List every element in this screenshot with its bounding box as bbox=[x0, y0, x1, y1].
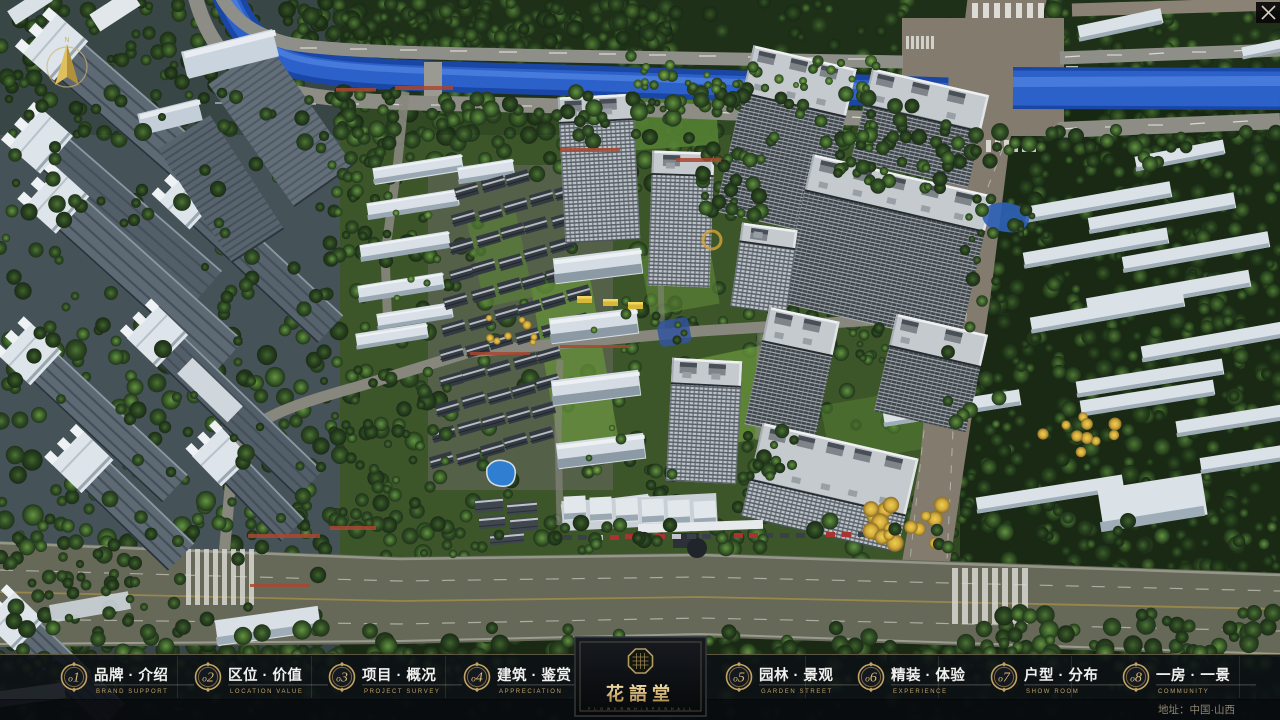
svg-text:EXPERIENCE: EXPERIENCE bbox=[893, 689, 948, 695]
svg-text:一房 · 一景: 一房 · 一景 bbox=[1156, 666, 1230, 684]
svg-text:BRAND SUPPORT: BRAND SUPPORT bbox=[96, 689, 168, 695]
svg-text:建筑 · 鉴赏: 建筑 · 鉴赏 bbox=[497, 666, 571, 684]
svg-text:COMMUNITY: COMMUNITY bbox=[1158, 689, 1209, 695]
svg-text:N: N bbox=[64, 37, 69, 44]
svg-text:项目 · 概况: 项目 · 概况 bbox=[362, 666, 436, 684]
svg-text:PROJECT SURVEY: PROJECT SURVEY bbox=[364, 689, 441, 695]
svg-text:GARDEN STREET: GARDEN STREET bbox=[761, 689, 833, 695]
svg-text:地址：中国·山西: 地址：中国·山西 bbox=[1158, 703, 1235, 716]
svg-text:F L O W E R W H I S P E R H: F L O W E R W H I S P E R H A L L bbox=[588, 707, 692, 711]
svg-text:区位 · 价值: 区位 · 价值 bbox=[228, 666, 302, 684]
svg-text:SHOW ROOM: SHOW ROOM bbox=[1026, 689, 1079, 695]
svg-text:LOCATION VALUE: LOCATION VALUE bbox=[230, 689, 304, 695]
svg-text:户型 · 分布: 户型 · 分布 bbox=[1024, 666, 1098, 684]
svg-text:园林 · 景观: 园林 · 景观 bbox=[759, 666, 833, 684]
svg-text:花語堂: 花語堂 bbox=[606, 683, 675, 704]
svg-text:精装 · 体验: 精装 · 体验 bbox=[891, 666, 965, 684]
svg-text:APPRECIATION: APPRECIATION bbox=[499, 689, 562, 695]
svg-text:品牌 · 介绍: 品牌 · 介绍 bbox=[94, 666, 168, 684]
